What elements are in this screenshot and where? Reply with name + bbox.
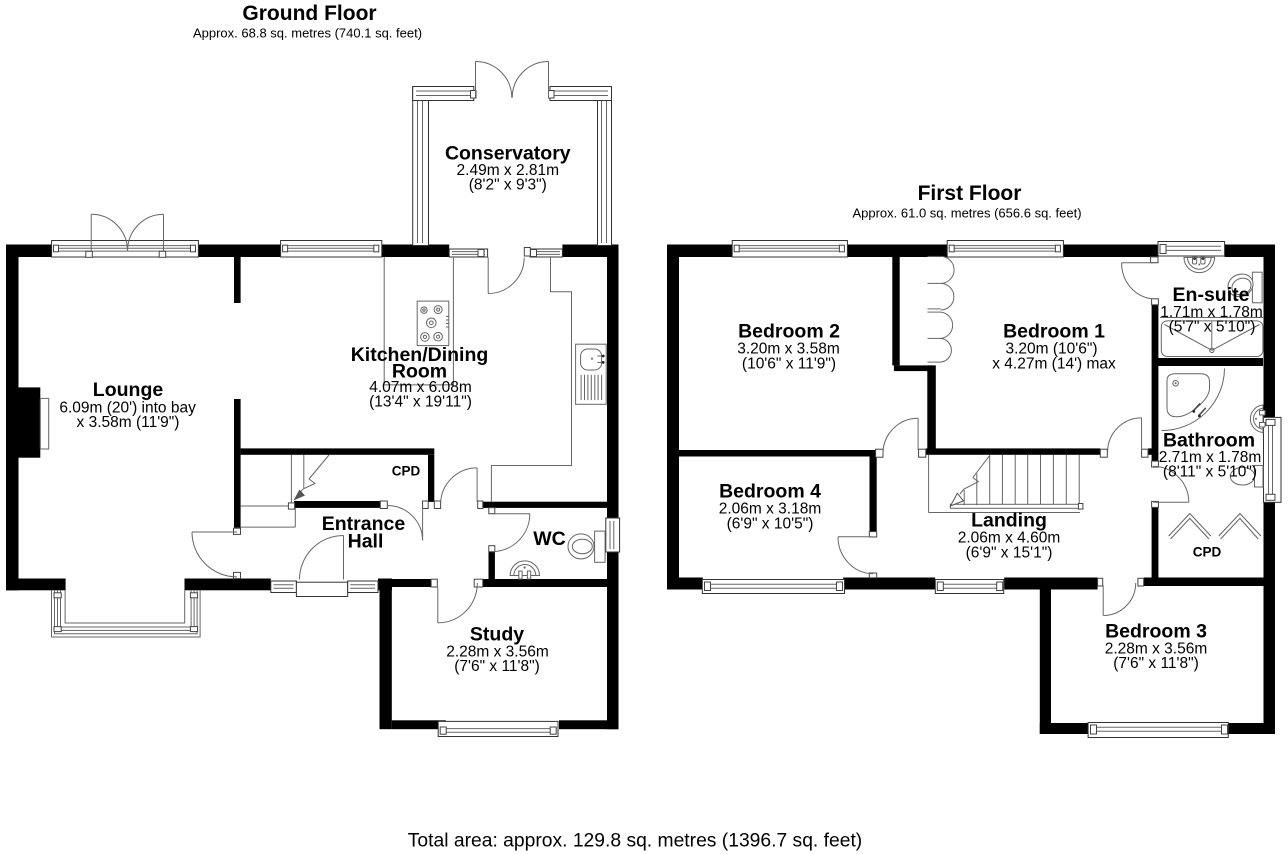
svg-text:Landing: Landing — [971, 510, 1047, 532]
svg-text:Bedroom 2: Bedroom 2 — [738, 321, 840, 343]
svg-text:(13'4" x 19'11"): (13'4" x 19'11") — [369, 393, 472, 410]
svg-text:Hall: Hall — [348, 531, 384, 553]
svg-text:Approx. 61.0 sq. metres (656.6: Approx. 61.0 sq. metres (656.6 sq. feet) — [852, 205, 1081, 220]
svg-text:(8'11" x 5'10"): (8'11" x 5'10") — [1163, 464, 1257, 481]
svg-text:x 3.58m (11'9"): x 3.58m (11'9") — [77, 414, 180, 431]
svg-text:Bedroom 4: Bedroom 4 — [719, 481, 821, 503]
svg-text:(7'6" x 11'8"): (7'6" x 11'8") — [1113, 655, 1199, 672]
svg-text:Approx. 68.8 sq. metres (740.1: Approx. 68.8 sq. metres (740.1 sq. feet) — [193, 25, 422, 40]
svg-text:WC: WC — [533, 528, 566, 550]
svg-text:(6'9" x 10'5"): (6'9" x 10'5") — [727, 516, 814, 533]
svg-text:x 4.27m (14') max: x 4.27m (14') max — [992, 356, 1116, 373]
svg-text:(5'7" x 5'10"): (5'7" x 5'10") — [1169, 319, 1256, 336]
svg-text:Lounge: Lounge — [93, 379, 164, 401]
svg-text:Study: Study — [470, 624, 524, 646]
svg-text:(10'6" x 11'9"): (10'6" x 11'9") — [742, 356, 836, 373]
svg-text:First Floor: First Floor — [918, 182, 1022, 205]
svg-text:En-suite: En-suite — [1173, 284, 1250, 306]
svg-text:(8'2" x 9'3"): (8'2" x 9'3") — [469, 177, 547, 194]
svg-text:Ground Floor: Ground Floor — [242, 2, 376, 25]
svg-text:(7'6" x 11'8"): (7'6" x 11'8") — [454, 658, 540, 675]
svg-text:CPD: CPD — [392, 464, 421, 479]
svg-text:Bedroom 1: Bedroom 1 — [1003, 321, 1105, 343]
svg-text:Total area: approx. 129.8 sq.: Total area: approx. 129.8 sq. metres (13… — [408, 831, 862, 852]
svg-text:(6'9" x 15'1"): (6'9" x 15'1") — [966, 545, 1053, 562]
svg-text:Bedroom 3: Bedroom 3 — [1105, 621, 1207, 643]
svg-text:CPD: CPD — [1193, 545, 1222, 560]
